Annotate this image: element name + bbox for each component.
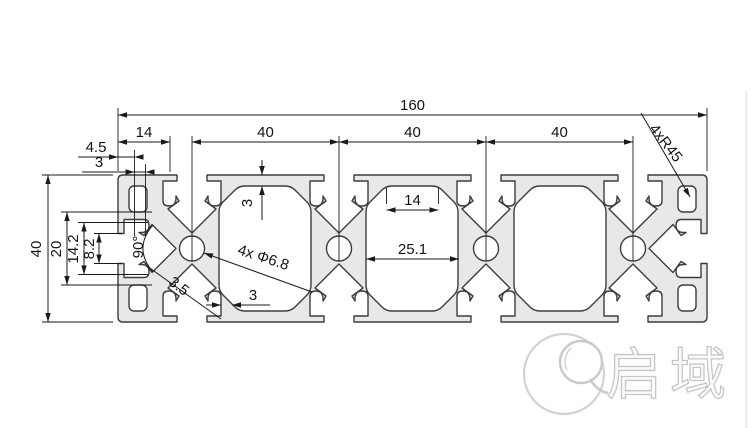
- dim-edge-to-first-slot: 14: [136, 124, 153, 141]
- drawing-canvas: 启域: [0, 0, 751, 428]
- corner-cavity: [129, 285, 147, 311]
- dim-end-lip-step: 3: [95, 154, 103, 171]
- corner-cavity: [678, 285, 696, 311]
- dim-vee-angle: 90°: [130, 236, 147, 259]
- dim-slot-pitch-3: 40: [551, 124, 568, 141]
- dim-end-slot-inner: 14.2: [65, 234, 82, 263]
- dim-cavity-top-width: 14: [404, 192, 421, 209]
- brand-name-text: 启域: [606, 343, 734, 406]
- dim-end-slot-opening: 8.2: [81, 239, 98, 260]
- dim-slot-pitch-2: 40: [404, 124, 421, 141]
- technical-drawing-page: 启域: [0, 0, 751, 428]
- corner-cavity: [678, 186, 696, 212]
- corner-cavity: [129, 186, 147, 212]
- dim-overall-width: 160: [400, 97, 425, 114]
- dim-overall-height: 40: [28, 241, 45, 258]
- dim-cavity-mid-width: 25.1: [398, 241, 427, 258]
- dim-end-mid-span: 20: [48, 241, 65, 258]
- dim-corner-callout: 4xR45: [646, 121, 686, 166]
- dim-bottom-wall: 3: [249, 287, 257, 304]
- dim-slot-pitch-1: 40: [257, 124, 274, 141]
- page-edge-line: [745, 90, 748, 428]
- brand-logo: 启域: [524, 334, 734, 414]
- logo-q-icon: [560, 341, 602, 383]
- dim-top-wall: 3: [239, 199, 256, 207]
- center-cavity: [514, 186, 606, 311]
